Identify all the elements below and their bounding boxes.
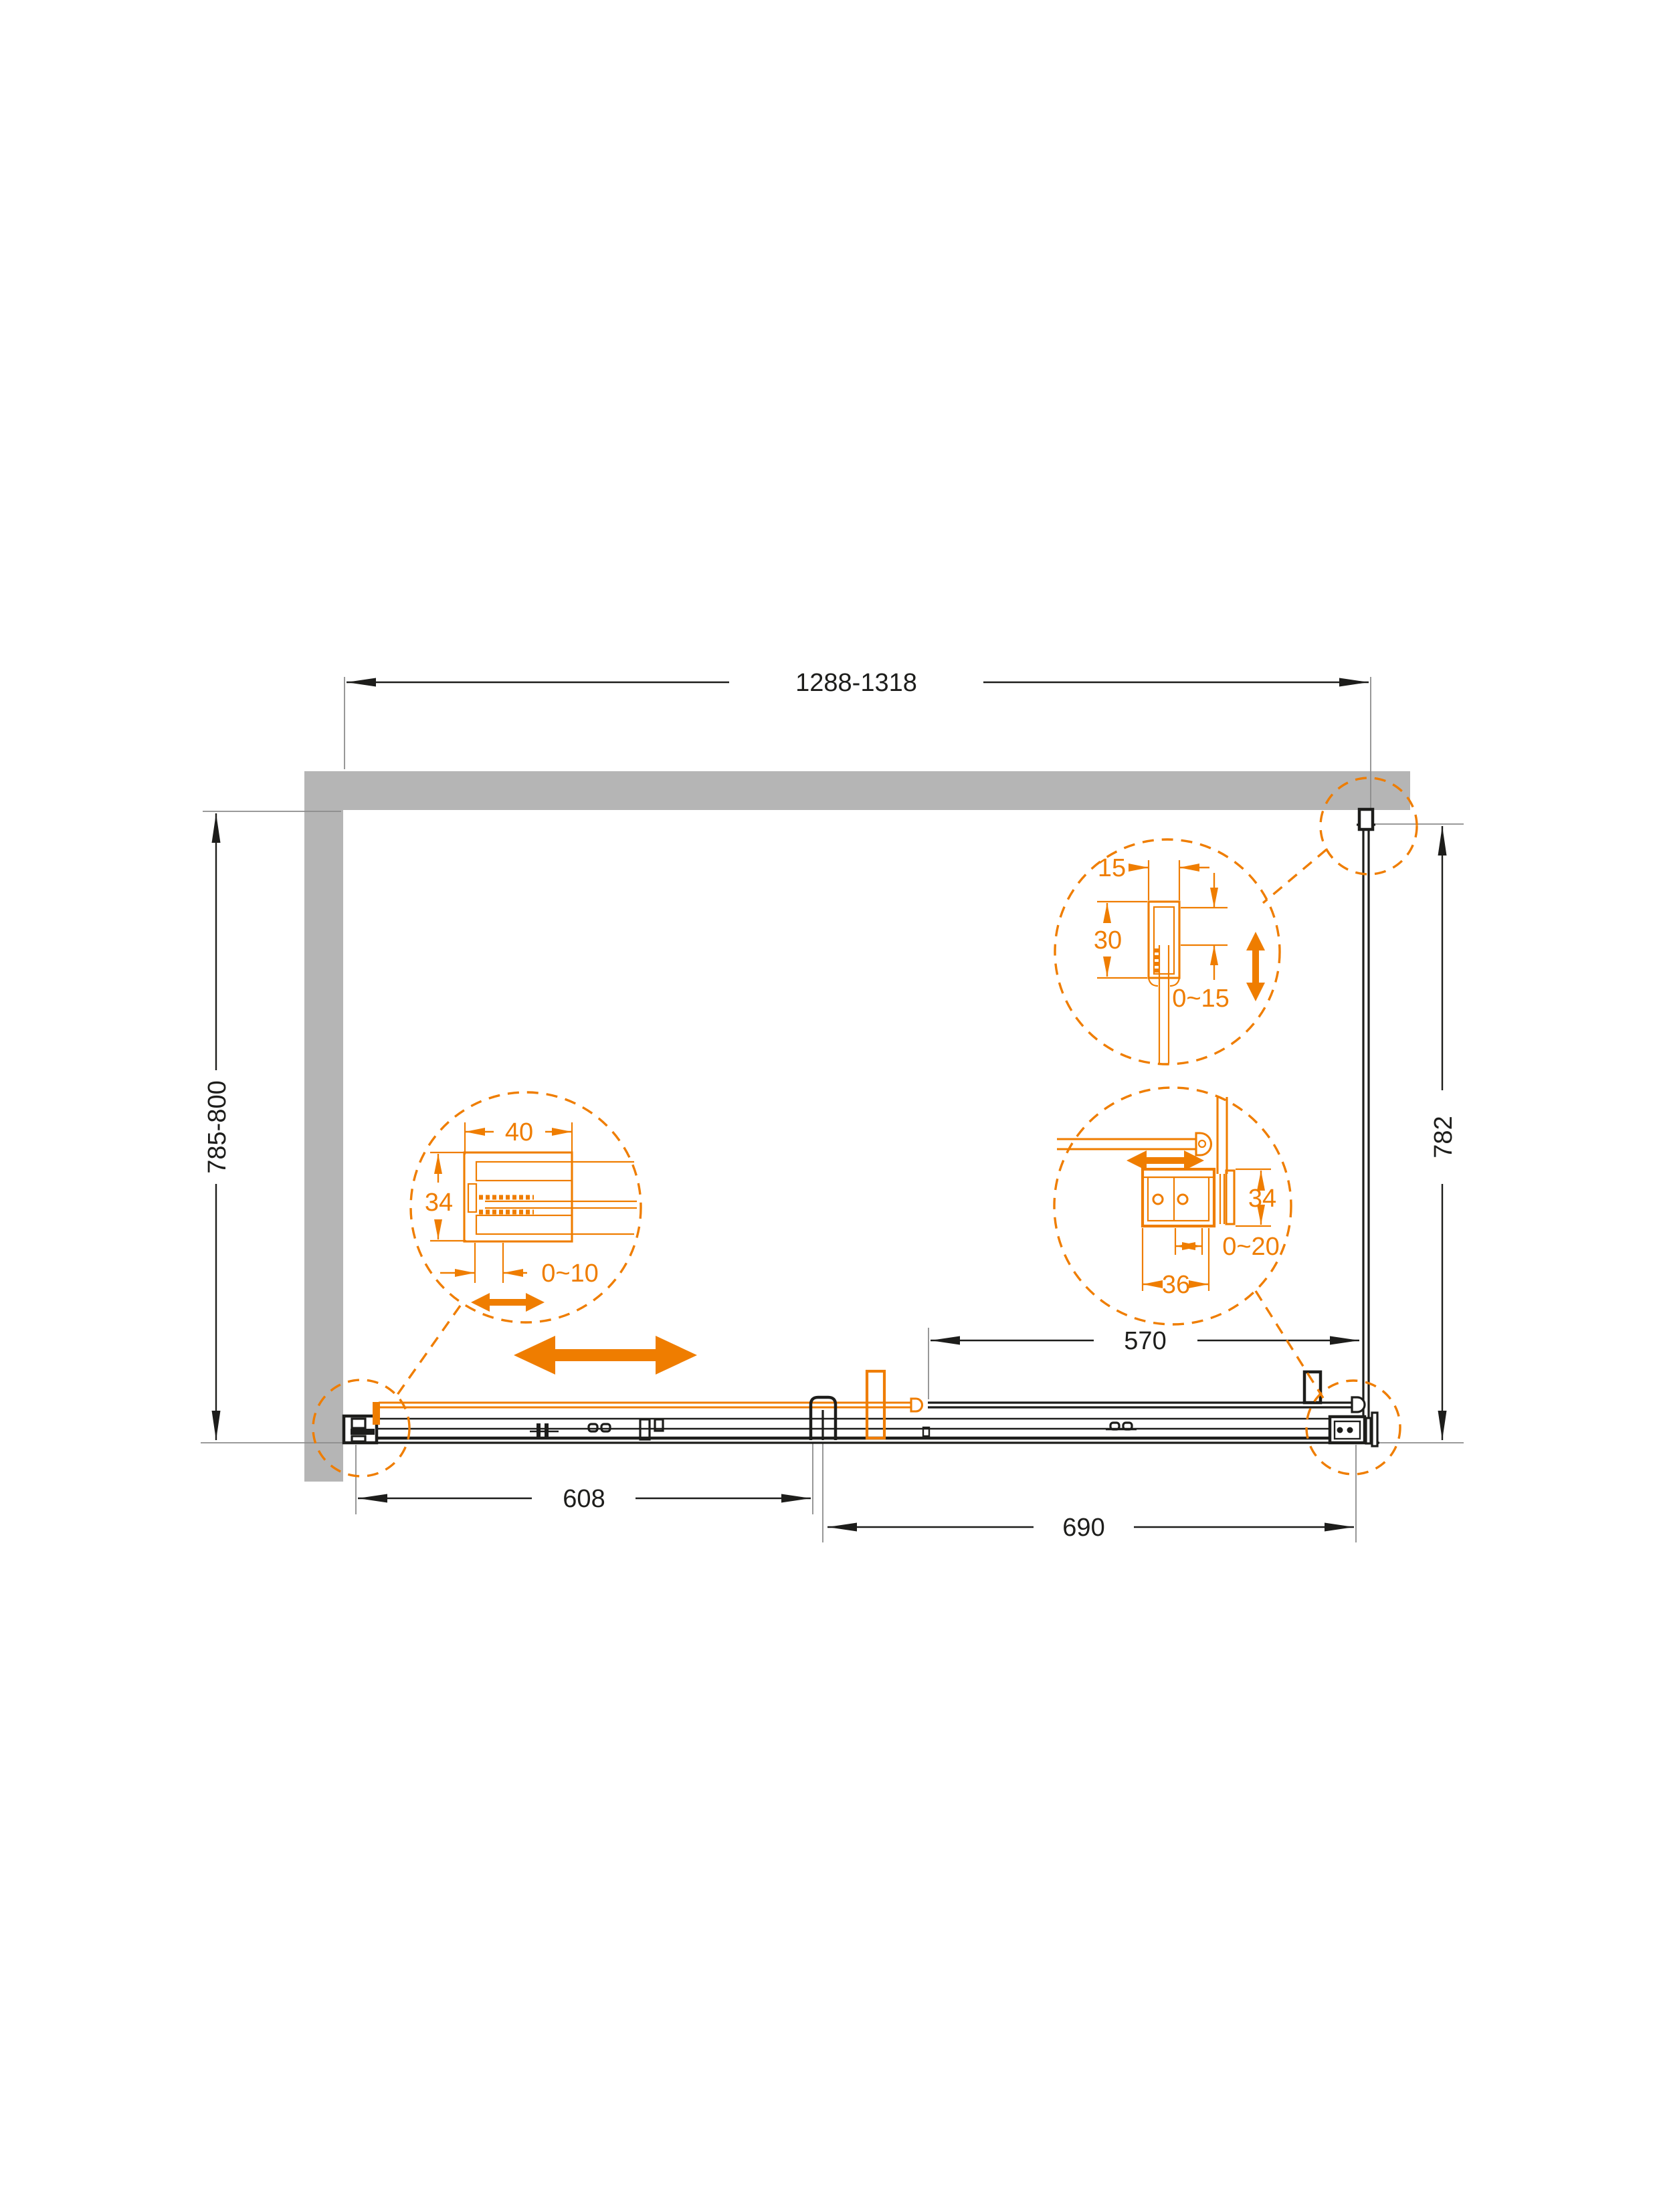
detail-wall-profile-adjust-label: 0~10: [541, 1260, 599, 1288]
fixed-panel-line: [923, 1372, 1365, 1436]
dim-fixed-section: 690: [827, 1514, 1354, 1542]
leader-line-top-right: [1263, 849, 1327, 903]
roller: [589, 1424, 610, 1431]
dim-overall-width-label: 1288-1318: [795, 669, 917, 697]
dim-depth-right-label: 782: [1430, 1116, 1458, 1158]
leader-line-left: [397, 1306, 460, 1395]
detail-top-profile-adjust-label: 0~15: [1172, 985, 1230, 1013]
detail-corner-bracket-height-label: 34: [1248, 1185, 1276, 1213]
walls: [304, 771, 1410, 1482]
dim-fixed-panel-label: 570: [1124, 1327, 1166, 1355]
dim-depth-right: 782: [1430, 826, 1458, 1440]
detail-wall-profile-width-label: 40: [505, 1118, 533, 1146]
door-end-bumper: [911, 1399, 922, 1411]
drawing-sheet: 1288-1318 785-800 782 570 608 690: [0, 0, 1659, 2212]
fixed-glass-panel-right: [1357, 809, 1375, 1441]
detail-corner-bracket-adjust-label: 0~20: [1222, 1233, 1280, 1261]
detail-corner-bracket-width-label: 36: [1162, 1271, 1190, 1299]
door-wall-end-piece: [373, 1402, 380, 1425]
magnifier-circles: [313, 778, 1417, 1476]
wall-top: [304, 771, 1410, 810]
dim-depth-left-label: 785-800: [203, 1080, 231, 1173]
fixed-panel-end-bumper: [1352, 1397, 1365, 1412]
detail-circle-corner-bracket: 34 0~20 36: [1054, 1088, 1291, 1324]
dim-depth-left: 785-800: [203, 813, 231, 1440]
detail-top-profile-width-label: 15: [1098, 854, 1126, 882]
shower-enclosure-plan-drawing: 1288-1318 785-800 782 570 608 690: [0, 0, 1659, 2212]
detail-top-profile-depth-label: 30: [1094, 926, 1122, 954]
corner-connector: [1330, 1413, 1377, 1446]
dim-overall-width: 1288-1318: [347, 669, 1369, 697]
detail-circle-top-profile: 15 30 0~15: [1055, 839, 1280, 1064]
bottom-track-assembly: [343, 1371, 1379, 1446]
wall-profile-left: [344, 1416, 377, 1443]
slide-direction-arrow: [514, 1336, 697, 1375]
detail-circle-wall-profile: 40 34 0~10: [411, 1092, 641, 1322]
dim-door-opening-label: 608: [563, 1485, 605, 1513]
leader-line-bottom-right: [1256, 1291, 1323, 1398]
detail-wall-profile-height-label: 34: [425, 1189, 453, 1217]
glass-wall-bracket: [1357, 809, 1375, 829]
wall-left: [304, 810, 343, 1482]
dim-door-opening: 608: [358, 1485, 811, 1513]
dim-fixed-section-label: 690: [1062, 1514, 1104, 1542]
dim-fixed-panel: 570: [931, 1327, 1359, 1355]
